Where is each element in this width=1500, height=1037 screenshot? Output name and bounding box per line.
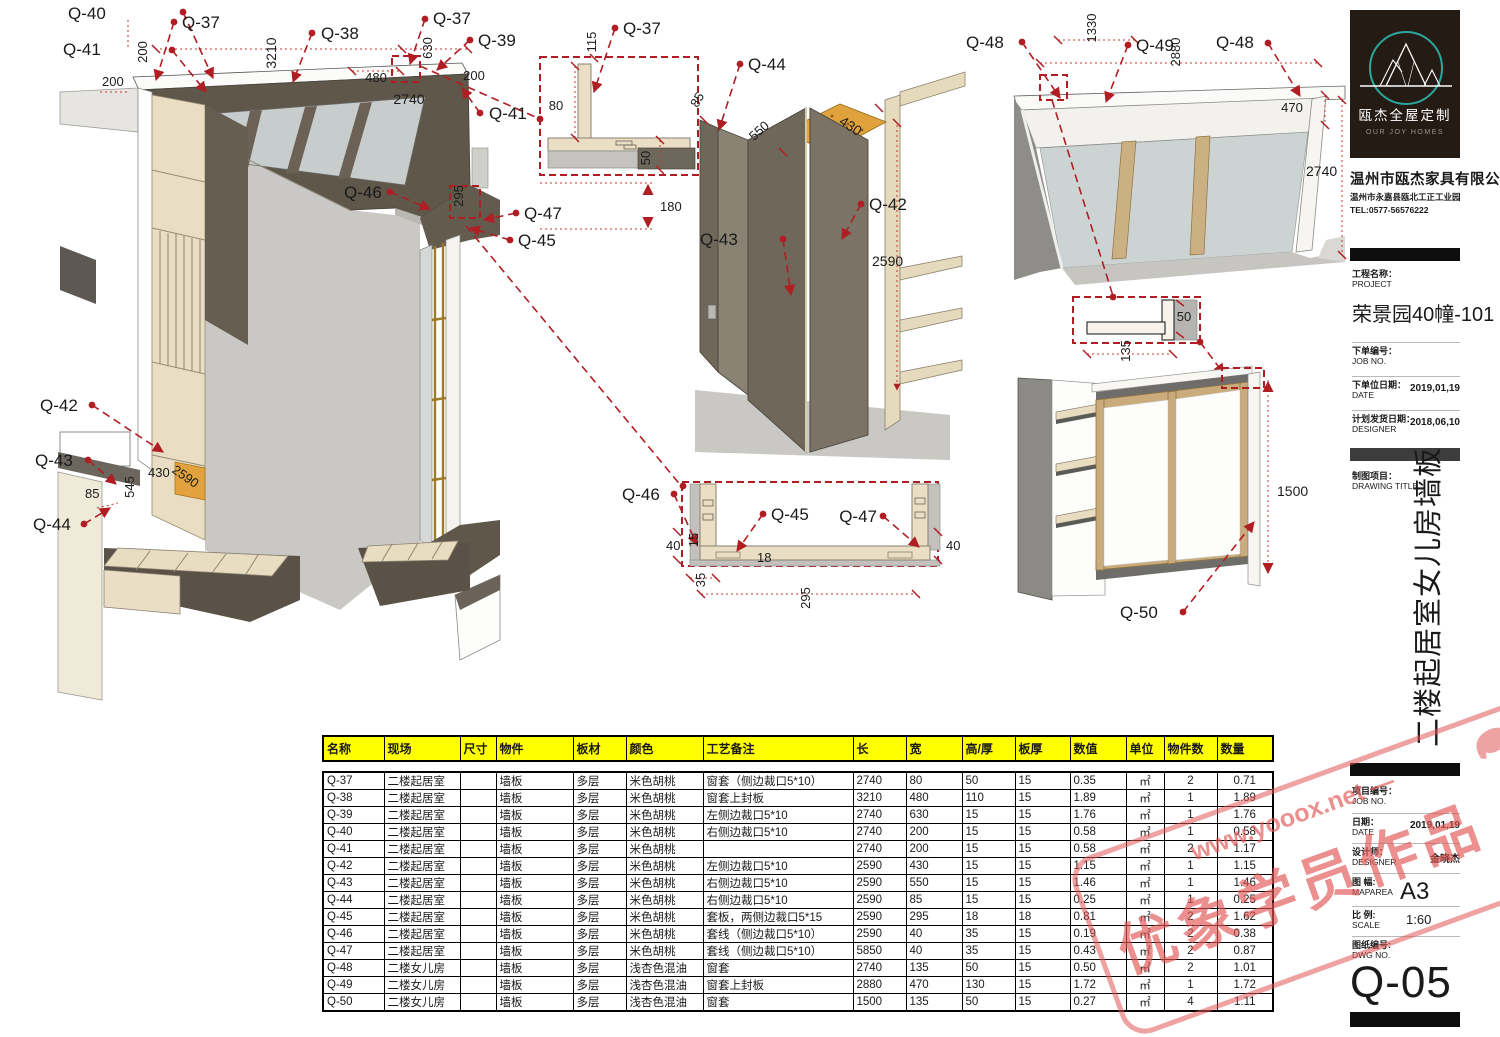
corner-label-q44: Q-44	[748, 55, 786, 74]
cell-process: 窗套	[703, 960, 853, 977]
project-label: 工程名称：	[1352, 269, 1460, 279]
cell-object: 墙板	[496, 892, 573, 909]
cell-width: 430	[906, 858, 962, 875]
cell-color: 米色胡桃	[626, 875, 703, 892]
cell-value: 0.35	[1070, 772, 1126, 790]
cell-board: 多层	[573, 994, 626, 1012]
cell-object: 墙板	[496, 943, 573, 960]
drawing-area: Q-40 Q-37 Q-41 Q-38 Q-37 Q-39 Q-41 Q-46 …	[0, 0, 1500, 720]
cell-length: 2740	[853, 960, 906, 977]
cell-qty: 0.38	[1217, 926, 1273, 943]
cell-site: 二楼起居室	[384, 790, 460, 807]
cell-height: 35	[962, 926, 1015, 943]
cell-site: 二楼女儿房	[384, 977, 460, 994]
cell-width: 550	[906, 875, 962, 892]
side-window-view: Q-50 1500	[1018, 366, 1308, 622]
drawing-sheet: Q-40 Q-37 Q-41 Q-38 Q-37 Q-39 Q-41 Q-46 …	[0, 0, 1500, 1037]
cell-thickness: 15	[1015, 841, 1070, 858]
order-date-value: 2019,01,19	[1410, 383, 1460, 394]
cell-size	[460, 960, 496, 977]
cell-value: 1.46	[1070, 875, 1126, 892]
cell-object: 墙板	[496, 790, 573, 807]
jobno-label: 下单编号：	[1352, 346, 1460, 356]
cell-qty: 1.46	[1217, 875, 1273, 892]
table-row: Q-39 二楼起居室 墙板 多层 米色胡桃 左侧边裁口5*10 2740 630…	[323, 807, 1273, 824]
ldetail-dim-50: 50	[1177, 309, 1191, 324]
cell-width: 480	[906, 790, 962, 807]
cell-qty: 1.62	[1217, 909, 1273, 926]
cell-color: 米色胡桃	[626, 909, 703, 926]
cell-unit: ㎡	[1126, 977, 1164, 994]
cell-height: 50	[962, 960, 1015, 977]
cell-color: 米色胡桃	[626, 807, 703, 824]
table-row: Q-43 二楼起居室 墙板 多层 米色胡桃 右侧边裁口5*10 2590 550…	[323, 875, 1273, 892]
cell-size	[460, 790, 496, 807]
window-glass	[1040, 132, 1308, 268]
cell-process: 套线（侧边裁口5*10）	[703, 943, 853, 960]
cell-name: Q-37	[323, 772, 384, 790]
cell-width: 85	[906, 892, 962, 909]
channel-dim-18: 18	[757, 550, 771, 565]
wtop-label-q48r: Q-48	[1216, 33, 1254, 52]
cell-height: 50	[962, 994, 1015, 1012]
window-gold-frame	[432, 243, 446, 552]
cell-qty: 0.25	[1217, 892, 1273, 909]
col-board: 板材	[573, 736, 626, 761]
cell-unit: ㎡	[1126, 790, 1164, 807]
cell-thickness: 15	[1015, 943, 1070, 960]
wtop-dim-2880: 2880	[1168, 38, 1183, 67]
cell-thickness: 15	[1015, 960, 1070, 977]
cell-qty: 0.87	[1217, 943, 1273, 960]
cell-length: 2590	[853, 875, 906, 892]
cell-value: 0.58	[1070, 824, 1126, 841]
cell-thickness: 15	[1015, 875, 1070, 892]
room-label-q43: Q-43	[35, 451, 73, 470]
cell-count: 1	[1164, 858, 1217, 875]
cell-thickness: 15	[1015, 824, 1070, 841]
cell-size	[460, 977, 496, 994]
cell-size	[460, 824, 496, 841]
cell-size	[460, 909, 496, 926]
cell-color: 米色胡桃	[626, 772, 703, 790]
cell-name: Q-49	[323, 977, 384, 994]
cell-length: 2590	[853, 858, 906, 875]
cell-process	[703, 841, 853, 858]
room-label-q40: Q-40	[68, 4, 106, 23]
cell-name: Q-43	[323, 875, 384, 892]
col-qty: 数量	[1217, 736, 1273, 761]
cell-size	[460, 772, 496, 790]
room-dim-545: 545	[122, 476, 137, 498]
cell-height: 15	[962, 807, 1015, 824]
order-date-row: 下单位日期： DATE 2019,01,19	[1352, 376, 1460, 400]
company-tel: TEL:0577-56576222	[1350, 205, 1480, 215]
bench-left	[104, 548, 300, 622]
col-process: 工艺备注	[703, 736, 853, 761]
date2-value: 2019,01,19	[1410, 820, 1460, 831]
date2-row: 日期： DATE 2019,01,19	[1352, 813, 1460, 837]
cell-size	[460, 926, 496, 943]
cell-board: 多层	[573, 858, 626, 875]
wtop-dim-470: 470	[1281, 100, 1303, 115]
cell-color: 浅杏色混油	[626, 994, 703, 1012]
channel-dim-40r: 40	[946, 538, 960, 553]
room-label-q41b: Q-41	[489, 104, 527, 123]
corner-label-q43: Q-43	[700, 230, 738, 249]
cell-board: 多层	[573, 790, 626, 807]
table-row: Q-50 二楼女儿房 墙板 多层 浅杏色混油 窗套 1500 135 50 15…	[323, 994, 1273, 1012]
room-dim-480: 480	[365, 70, 387, 85]
cell-name: Q-46	[323, 926, 384, 943]
jobno2-label: 项目编号：	[1352, 786, 1460, 796]
room-label-q37b: Q-37	[433, 9, 471, 28]
cell-value: 0.19	[1070, 926, 1126, 943]
cell-count: 2	[1164, 926, 1217, 943]
cell-process: 套线（侧边裁口5*10）	[703, 926, 853, 943]
dwgno-label: 图纸编号:	[1352, 940, 1460, 950]
cell-length: 2590	[853, 926, 906, 943]
wside-label-q50: Q-50	[1120, 603, 1158, 622]
header-row: 名称 现场 尺寸 物件 板材 颜色 工艺备注 长 宽 高/厚 板厚 数值 单位 …	[323, 736, 1273, 761]
panel-q42-face	[810, 108, 868, 452]
cell-count: 2	[1164, 960, 1217, 977]
cell-board: 多层	[573, 841, 626, 858]
cell-thickness: 15	[1015, 892, 1070, 909]
cell-width: 200	[906, 841, 962, 858]
cell-qty: 1.72	[1217, 977, 1273, 994]
cell-color: 米色胡桃	[626, 926, 703, 943]
cell-height: 15	[962, 892, 1015, 909]
cell-height: 110	[962, 790, 1015, 807]
cell-site: 二楼起居室	[384, 841, 460, 858]
corner-label-q42: Q-42	[869, 195, 907, 214]
cell-length: 1500	[853, 994, 906, 1012]
cell-size	[460, 841, 496, 858]
cell-site: 二楼起居室	[384, 772, 460, 790]
cell-thickness: 15	[1015, 790, 1070, 807]
cell-color: 米色胡桃	[626, 790, 703, 807]
cell-thickness: 18	[1015, 909, 1070, 926]
project-label-row: 工程名称： PROJECT	[1352, 266, 1460, 289]
cell-count: 1	[1164, 892, 1217, 909]
room-dim-430: 430	[148, 465, 170, 480]
table-row: Q-47 二楼起居室 墙板 多层 米色胡桃 套线（侧边裁口5*10） 5850 …	[323, 943, 1273, 960]
dwgno-value: Q-05	[1350, 958, 1452, 1008]
cell-process: 窗套	[703, 994, 853, 1012]
cell-color: 浅杏色混油	[626, 960, 703, 977]
cell-name: Q-42	[323, 858, 384, 875]
cell-count: 1	[1164, 790, 1217, 807]
cell-length: 2590	[853, 909, 906, 926]
channel-label-q47: Q-47	[839, 507, 877, 526]
room-dim-3210: 3210	[263, 37, 279, 68]
cell-object: 墙板	[496, 909, 573, 926]
room-dim-2740: 2740	[393, 91, 424, 107]
cell-object: 墙板	[496, 772, 573, 790]
cell-width: 135	[906, 994, 962, 1012]
cell-count: 1	[1164, 824, 1217, 841]
cell-process: 左侧边裁口5*10	[703, 858, 853, 875]
corner-panels-view: Q-44 Q-42 Q-43 85 550 430 2590	[687, 55, 965, 460]
bench-right	[358, 541, 470, 606]
table-row: Q-45 二楼起居室 墙板 多层 米色胡桃 套板，两侧边裁口5*15 2590 …	[323, 909, 1273, 926]
dwgno-row: 图纸编号: DWG NO.	[1352, 936, 1460, 960]
cell-count: 1	[1164, 977, 1217, 994]
company-name: 温州市瓯杰家具有限公司	[1350, 168, 1480, 189]
channel-dim-35: 35	[693, 573, 708, 587]
cell-board: 多层	[573, 772, 626, 790]
cell-board: 多层	[573, 926, 626, 943]
cell-height: 15	[962, 858, 1015, 875]
corner-dim-85: 85	[687, 90, 707, 110]
cell-site: 二楼起居室	[384, 807, 460, 824]
drawings-svg: Q-40 Q-37 Q-41 Q-38 Q-37 Q-39 Q-41 Q-46 …	[0, 0, 1500, 720]
logo-mountains-icon: 瓯杰全屋定制 OUR JOY HOMES	[1350, 10, 1460, 158]
ship-date-value: 2018,06,10	[1410, 417, 1460, 428]
cell-color: 米色胡桃	[626, 858, 703, 875]
cell-length: 2880	[853, 977, 906, 994]
cell-width: 200	[906, 824, 962, 841]
table-row: Q-44 二楼起居室 墙板 多层 米色胡桃 右侧边裁口5*10 2590 85 …	[323, 892, 1273, 909]
room-label-q45: Q-45	[518, 231, 556, 250]
cell-value: 0.58	[1070, 841, 1126, 858]
cell-object: 墙板	[496, 926, 573, 943]
cell-thickness: 15	[1015, 994, 1070, 1012]
cell-process: 右侧边裁口5*10	[703, 824, 853, 841]
cell-unit: ㎡	[1126, 960, 1164, 977]
cell-count: 2	[1164, 943, 1217, 960]
col-unit: 单位	[1126, 736, 1164, 761]
table-row: Q-42 二楼起居室 墙板 多层 米色胡桃 左侧边裁口5*10 2590 430…	[323, 858, 1273, 875]
cell-object: 墙板	[496, 824, 573, 841]
cell-height: 15	[962, 824, 1015, 841]
cell-qty: 1.15	[1217, 858, 1273, 875]
jobno-label-en: JOB NO.	[1352, 356, 1460, 366]
cell-process: 窗套上封板	[703, 977, 853, 994]
cell-width: 295	[906, 909, 962, 926]
cell-unit: ㎡	[1126, 807, 1164, 824]
window-casing-detail: Q-37 115 80 50 180	[537, 19, 698, 229]
cell-site: 二楼起居室	[384, 875, 460, 892]
cell-length: 3210	[853, 790, 906, 807]
cell-site: 二楼起居室	[384, 858, 460, 875]
col-thickness: 板厚	[1015, 736, 1070, 761]
cell-site: 二楼女儿房	[384, 994, 460, 1012]
channel-label-q45: Q-45	[771, 505, 809, 524]
panel-q43-face	[748, 108, 806, 452]
cell-process: 窗套上封板	[703, 790, 853, 807]
divider-bar	[1350, 248, 1460, 261]
cell-name: Q-44	[323, 892, 384, 909]
cell-name: Q-50	[323, 994, 384, 1012]
table-row: Q-49 二楼女儿房 墙板 多层 浅杏色混油 窗套上封板 2880 470 13…	[323, 977, 1273, 994]
cell-value: 0.50	[1070, 960, 1126, 977]
cell-thickness: 15	[1015, 807, 1070, 824]
room-label-q47: Q-47	[524, 204, 562, 223]
cell-site: 二楼起居室	[384, 943, 460, 960]
room-label-q42: Q-42	[40, 396, 78, 415]
cell-width: 470	[906, 977, 962, 994]
cell-name: Q-40	[323, 824, 384, 841]
cell-size	[460, 943, 496, 960]
cell-height: 130	[962, 977, 1015, 994]
room-label-q39: Q-39	[478, 31, 516, 50]
room-dim-200r: 200	[463, 68, 485, 83]
cell-color: 米色胡桃	[626, 824, 703, 841]
cell-height: 35	[962, 943, 1015, 960]
wtop-dim-1330: 1330	[1084, 14, 1099, 43]
cell-unit: ㎡	[1126, 772, 1164, 790]
cell-board: 多层	[573, 909, 626, 926]
cell-qty: 1.11	[1217, 994, 1273, 1012]
corner-casing-detail: 50 135	[1073, 294, 1224, 374]
cell-width: 80	[906, 772, 962, 790]
logo-brand-en: OUR JOY HOMES	[1366, 129, 1444, 136]
cell-width: 135	[906, 960, 962, 977]
cell-board: 多层	[573, 977, 626, 994]
cell-color: 浅杏色混油	[626, 977, 703, 994]
parts-table: 名称 现场 尺寸 物件 板材 颜色 工艺备注 长 宽 高/厚 板厚 数值 单位 …	[322, 735, 1274, 1012]
cell-object: 墙板	[496, 807, 573, 824]
cell-value: 0.81	[1070, 909, 1126, 926]
wtop-label-q48l: Q-48	[966, 33, 1004, 52]
cell-unit: ㎡	[1126, 875, 1164, 892]
room-label-q38: Q-38	[321, 24, 359, 43]
col-value: 数值	[1070, 736, 1126, 761]
cell-process: 窗套（侧边裁口5*10）	[703, 772, 853, 790]
cell-color: 米色胡桃	[626, 892, 703, 909]
cell-count: 2	[1164, 909, 1217, 926]
cell-board: 多层	[573, 943, 626, 960]
channel-dim-15: 15	[686, 533, 701, 547]
table-row: Q-37 二楼起居室 墙板 多层 米色胡桃 窗套（侧边裁口5*10） 2740 …	[323, 772, 1273, 790]
cell-site: 二楼女儿房	[384, 960, 460, 977]
cell-object: 墙板	[496, 875, 573, 892]
project-name: 荣景园40幢-101	[1352, 298, 1494, 327]
col-object: 物件	[496, 736, 573, 761]
jobno-row: 下单编号： JOB NO.	[1352, 342, 1460, 366]
designer-row: 设计师： DESIGNER 金晓杰	[1352, 843, 1460, 867]
cell-object: 墙板	[496, 858, 573, 875]
room-dim-200rot: 200	[135, 41, 150, 63]
cell-name: Q-48	[323, 960, 384, 977]
cell-length: 2740	[853, 772, 906, 790]
parts-table-body: Q-37 二楼起居室 墙板 多层 米色胡桃 窗套（侧边裁口5*10） 2740 …	[322, 771, 1274, 1012]
girls-room-window-view: Q-48 Q-49 Q-48 1330 2880 470 2740	[966, 14, 1346, 296]
parts-table-header: 名称 现场 尺寸 物件 板材 颜色 工艺备注 长 宽 高/厚 板厚 数值 单位 …	[322, 735, 1274, 762]
cell-unit: ㎡	[1126, 926, 1164, 943]
cell-size	[460, 875, 496, 892]
cell-unit: ㎡	[1126, 824, 1164, 841]
room-label-q37a: Q-37	[182, 13, 220, 32]
cell-qty: 1.76	[1217, 807, 1273, 824]
cell-color: 米色胡桃	[626, 943, 703, 960]
cell-qty: 0.71	[1217, 772, 1273, 790]
cell-value: 0.27	[1070, 994, 1126, 1012]
cell-size	[460, 994, 496, 1012]
cell-site: 二楼起居室	[384, 824, 460, 841]
jobno2-label-en: JOB NO.	[1352, 796, 1460, 806]
room-dim-295: 295	[451, 185, 466, 207]
cell-qty: 1.01	[1217, 960, 1273, 977]
cell-height: 18	[962, 909, 1015, 926]
cell-process: 右侧边裁口5*10	[703, 892, 853, 909]
cell-unit: ㎡	[1126, 943, 1164, 960]
col-name: 名称	[323, 736, 384, 761]
table-row: Q-38 二楼起居室 墙板 多层 米色胡桃 窗套上封板 3210 480 110…	[323, 790, 1273, 807]
col-count: 物件数	[1164, 736, 1217, 761]
cell-unit: ㎡	[1126, 841, 1164, 858]
cell-object: 墙板	[496, 977, 573, 994]
table-row: Q-41 二楼起居室 墙板 多层 米色胡桃 2740 200 15 15 0.5…	[323, 841, 1273, 858]
cell-board: 多层	[573, 824, 626, 841]
company-info: 温州市瓯杰家具有限公司 温州市永嘉县瓯北工正工业园 TEL:0577-56576…	[1350, 168, 1480, 215]
cell-site: 二楼起居室	[384, 926, 460, 943]
cell-qty: 1.17	[1217, 841, 1273, 858]
cell-count: 2	[1164, 841, 1217, 858]
detail-label-q37: Q-37	[623, 19, 661, 38]
cell-object: 墙板	[496, 994, 573, 1012]
channel-dim-40l: 40	[666, 538, 680, 553]
cell-unit: ㎡	[1126, 858, 1164, 875]
divider-bar	[1350, 763, 1460, 776]
wtop-dim-2740: 2740	[1306, 163, 1337, 179]
cell-qty: 0.58	[1217, 824, 1273, 841]
channel-detail: Q-46 Q-45 Q-47 40 15 18 40 35 295	[622, 482, 960, 609]
maparea-value: A3	[1400, 878, 1429, 906]
company-logo: 瓯杰全屋定制 OUR JOY HOMES	[1350, 10, 1460, 158]
cell-count: 1	[1164, 875, 1217, 892]
cell-value: 0.25	[1070, 892, 1126, 909]
cell-value: 0.43	[1070, 943, 1126, 960]
cell-color: 米色胡桃	[626, 841, 703, 858]
cell-process: 左侧边裁口5*10	[703, 807, 853, 824]
cell-name: Q-47	[323, 943, 384, 960]
cell-width: 40	[906, 926, 962, 943]
cell-site: 二楼起居室	[384, 909, 460, 926]
cell-qty: 1.89	[1217, 790, 1273, 807]
table-row: Q-48 二楼女儿房 墙板 多层 浅杏色混油 窗套 2740 135 50 15…	[323, 960, 1273, 977]
cell-size	[460, 892, 496, 909]
col-color: 颜色	[626, 736, 703, 761]
cell-thickness: 15	[1015, 858, 1070, 875]
cell-length: 2740	[853, 807, 906, 824]
cell-site: 二楼起居室	[384, 892, 460, 909]
table-row: Q-46 二楼起居室 墙板 多层 米色胡桃 套线（侧边裁口5*10） 2590 …	[323, 926, 1273, 943]
cell-height: 15	[962, 875, 1015, 892]
cell-count: 4	[1164, 994, 1217, 1012]
jobno2-row: 项目编号： JOB NO.	[1352, 783, 1460, 806]
cell-process: 套板，两侧边裁口5*15	[703, 909, 853, 926]
cell-unit: ㎡	[1126, 994, 1164, 1012]
cell-board: 多层	[573, 807, 626, 824]
cell-value: 1.15	[1070, 858, 1126, 875]
col-site: 现场	[384, 736, 460, 761]
wside-dim-1500: 1500	[1277, 483, 1308, 499]
cell-value: 1.72	[1070, 977, 1126, 994]
cell-count: 1	[1164, 807, 1217, 824]
cell-board: 多层	[573, 960, 626, 977]
corner-dim-2590: 2590	[872, 253, 903, 269]
room-label-q44: Q-44	[33, 515, 71, 534]
ldetail-dim-135: 135	[1118, 340, 1133, 362]
col-height: 高/厚	[962, 736, 1015, 761]
cell-length: 2590	[853, 892, 906, 909]
cell-process: 右侧边裁口5*10	[703, 875, 853, 892]
designer-value: 金晓杰	[1430, 850, 1460, 865]
col-size: 尺寸	[460, 736, 496, 761]
